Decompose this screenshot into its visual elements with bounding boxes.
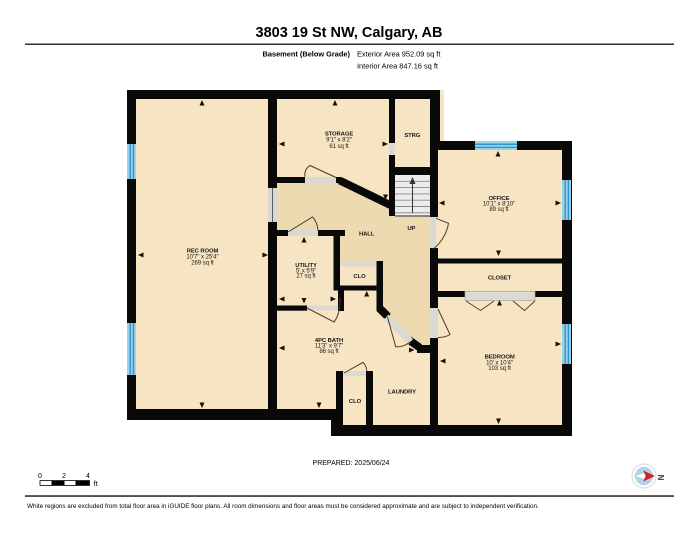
svg-text:2: 2 bbox=[62, 473, 66, 480]
svg-text:CLO: CLO bbox=[349, 399, 362, 405]
svg-text:White regions are excluded fro: White regions are excluded from total fl… bbox=[27, 503, 539, 510]
svg-text:103 sq ft: 103 sq ft bbox=[488, 366, 511, 372]
svg-text:89 sq ft: 89 sq ft bbox=[489, 207, 509, 213]
svg-text:STORAGE: STORAGE bbox=[325, 132, 353, 138]
svg-text:Interior Area 847.16 sq ft: Interior Area 847.16 sq ft bbox=[357, 62, 438, 71]
svg-text:CLO: CLO bbox=[353, 274, 366, 280]
svg-text:Exterior Area 952.09 sq ft: Exterior Area 952.09 sq ft bbox=[357, 50, 440, 59]
svg-text:PREPARED: 2025/06/24: PREPARED: 2025/06/24 bbox=[313, 460, 390, 467]
svg-text:86 sq ft: 86 sq ft bbox=[319, 349, 339, 355]
svg-text:N: N bbox=[656, 475, 665, 481]
svg-text:REC ROOM: REC ROOM bbox=[187, 248, 219, 254]
svg-text:4: 4 bbox=[86, 473, 90, 480]
svg-text:UP: UP bbox=[407, 226, 415, 232]
svg-text:61 sq ft: 61 sq ft bbox=[329, 144, 349, 150]
svg-text:0: 0 bbox=[38, 473, 42, 480]
svg-text:269 sq ft: 269 sq ft bbox=[191, 260, 214, 266]
svg-text:Basement (Below Grade): Basement (Below Grade) bbox=[263, 50, 351, 59]
svg-text:CLOSET: CLOSET bbox=[488, 276, 512, 282]
svg-text:LAUNDRY: LAUNDRY bbox=[388, 390, 416, 396]
svg-text:27 sq ft: 27 sq ft bbox=[296, 274, 316, 280]
svg-text:STRG: STRG bbox=[404, 133, 420, 139]
svg-text:3803 19 St NW, Calgary, AB: 3803 19 St NW, Calgary, AB bbox=[256, 25, 443, 41]
svg-text:9'1" x 8'2": 9'1" x 8'2" bbox=[326, 138, 352, 144]
svg-text:HALL: HALL bbox=[359, 231, 375, 237]
